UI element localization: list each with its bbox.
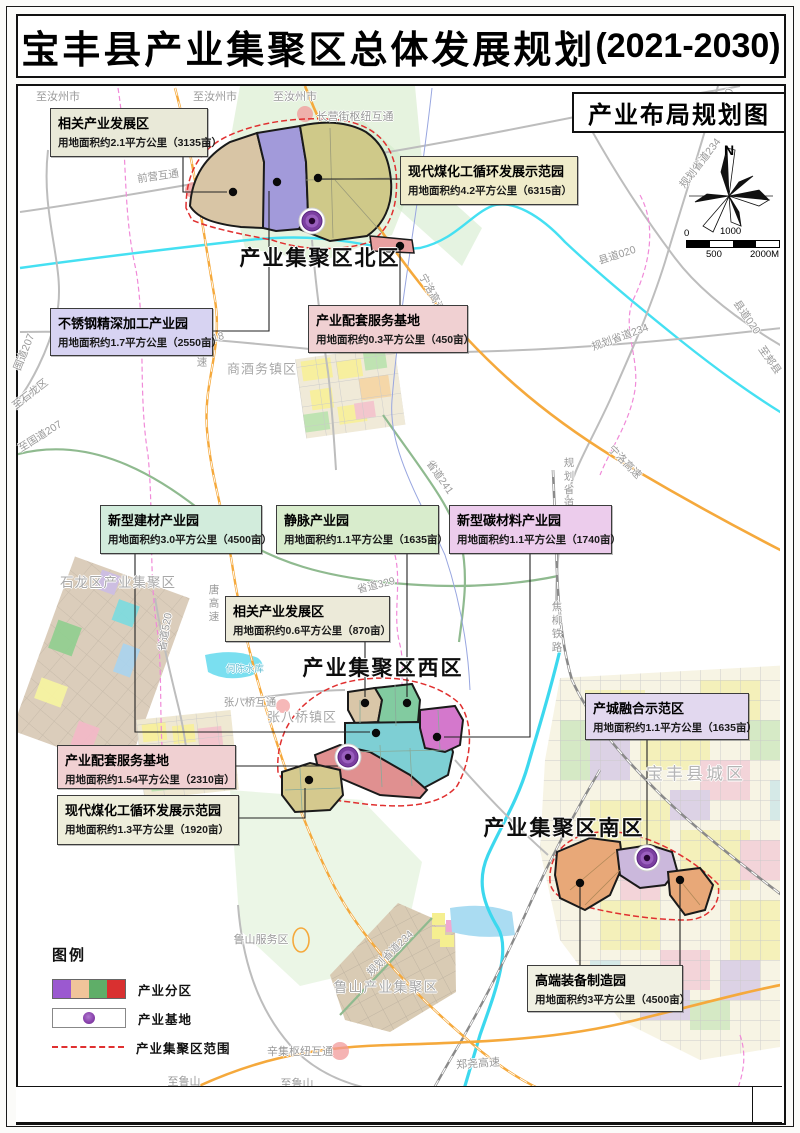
callout-name: 产业配套服务基地 bbox=[316, 310, 461, 329]
scale-2000: 2000M bbox=[750, 249, 779, 260]
park-dot bbox=[361, 699, 369, 707]
callout-name: 现代煤化工循环发展示范园 bbox=[408, 161, 571, 180]
scale-0: 0 bbox=[684, 228, 689, 239]
legend: 图例 产业分区产业基地产业集聚区范围 bbox=[52, 944, 231, 1066]
industry-base-marker bbox=[309, 218, 315, 224]
callout-name: 新型碳材料产业园 bbox=[457, 510, 605, 529]
industry-base-marker bbox=[345, 754, 351, 760]
legend-base-key bbox=[52, 1008, 126, 1028]
callout-area: 用地面积约0.3平方公里（450亩） bbox=[316, 332, 461, 347]
callout-0: 相关产业发展区用地面积约2.1平方公里（3135亩） bbox=[50, 108, 208, 157]
footer-divider bbox=[752, 1087, 753, 1122]
park-dot bbox=[576, 879, 584, 887]
callout-name: 产业配套服务基地 bbox=[65, 750, 229, 769]
industry-base-icon bbox=[83, 1012, 95, 1024]
park-dot bbox=[676, 876, 684, 884]
map-label-35: 郑尧高速 bbox=[455, 1053, 500, 1072]
map-label-0: 至汝州市 bbox=[36, 88, 80, 104]
callout-area: 用地面积约1.1平方公里（1635亩） bbox=[284, 532, 432, 547]
industry-base-marker bbox=[644, 855, 650, 861]
callout-area: 用地面积约3.0平方公里（4500亩） bbox=[108, 532, 255, 547]
map-label-29: 焦柳铁路 bbox=[550, 601, 565, 655]
callout-3: 产业配套服务基地用地面积约0.3平方公里（450亩） bbox=[308, 305, 468, 353]
callout-area: 用地面积约4.2平方公里（6315亩） bbox=[408, 183, 571, 198]
callout-area: 用地面积约1.54平方公里（2310亩） bbox=[65, 772, 229, 787]
park-dot bbox=[305, 776, 313, 784]
map-label-24: 石龙区产业集聚区 bbox=[60, 571, 176, 591]
callout-8: 产城融合示范区用地面积约1.1平方公里（1635亩） bbox=[585, 693, 749, 740]
callout-name: 产城融合示范区 bbox=[593, 698, 742, 717]
legend-item-label: 产业集聚区范围 bbox=[136, 1038, 231, 1057]
callout-10: 现代煤化工循环发展示范园用地面积约1.3平方公里（1920亩） bbox=[57, 795, 239, 845]
callout-area: 用地面积约1.3平方公里（1920亩） bbox=[65, 822, 232, 837]
callout-name: 现代煤化工循环发展示范园 bbox=[65, 800, 232, 819]
callout-6: 新型碳材料产业园用地面积约1.1平方公里（1740亩） bbox=[449, 505, 612, 554]
map-label-1: 至汝州市 bbox=[193, 88, 237, 104]
map-label-15: 唐高速 bbox=[207, 584, 222, 625]
map-label-30: 宝丰县城区 bbox=[646, 760, 746, 785]
planning-map-page: 宝丰县产业集聚区总体发展规划(2021-2030) 产业布局规划图 N 0 10… bbox=[0, 0, 800, 1133]
callout-area: 用地面积约2.1平方公里（3135亩） bbox=[58, 135, 201, 150]
callout-name: 静脉产业园 bbox=[284, 510, 432, 529]
map-label-26: 何陈水库 bbox=[226, 661, 264, 675]
callout-area: 用地面积约1.1平方公里（1740亩） bbox=[457, 532, 605, 547]
callout-11: 高端装备制造园用地面积约3平方公里（4500亩） bbox=[527, 965, 683, 1012]
legend-zone-swatches bbox=[52, 979, 126, 999]
park-dot bbox=[273, 178, 281, 186]
callout-7: 相关产业发展区用地面积约0.6平方公里（870亩） bbox=[225, 596, 390, 642]
callout-name: 相关产业发展区 bbox=[58, 113, 201, 132]
cluster-boundary-icon bbox=[52, 1046, 124, 1048]
callout-1: 现代煤化工循环发展示范园用地面积约4.2平方公里（6315亩） bbox=[400, 156, 578, 205]
callout-area: 用地面积约1.1平方公里（1635亩） bbox=[593, 720, 742, 735]
legend-item-0: 产业分区 bbox=[52, 979, 231, 999]
footer-strip bbox=[16, 1086, 782, 1124]
map-title: 产业布局规划图 bbox=[572, 92, 786, 133]
legend-item-label: 产业分区 bbox=[138, 980, 192, 999]
legend-item-label: 产业基地 bbox=[138, 1009, 192, 1028]
callout-name: 高端装备制造园 bbox=[535, 970, 676, 989]
callout-5: 静脉产业园用地面积约1.1平方公里（1635亩） bbox=[276, 505, 439, 554]
callout-area: 用地面积约0.6平方公里（870亩） bbox=[233, 623, 383, 638]
callout-name: 相关产业发展区 bbox=[233, 601, 383, 620]
park-dot bbox=[372, 729, 380, 737]
callout-name: 不锈钢精深加工产业园 bbox=[58, 313, 206, 332]
park-dot bbox=[229, 188, 237, 196]
legend-boundary-key bbox=[52, 1038, 124, 1056]
callout-name: 新型建材产业园 bbox=[108, 510, 255, 529]
map-label-13: 商酒务镇区 bbox=[227, 359, 297, 378]
map-label-3: 长营街枢纽互通 bbox=[317, 108, 394, 124]
map-label-28: 张八桥镇区 bbox=[267, 707, 337, 726]
map-label-31: 鲁山服务区 bbox=[234, 931, 289, 947]
scale-500: 500 bbox=[706, 249, 722, 260]
legend-title: 图例 bbox=[52, 944, 231, 965]
park-dot bbox=[403, 699, 411, 707]
district-label-2: 产业集聚区南区 bbox=[484, 812, 645, 842]
legend-item-2: 产业集聚区范围 bbox=[52, 1037, 231, 1057]
callout-area: 用地面积约3平方公里（4500亩） bbox=[535, 992, 676, 1007]
scale-bar: 0 1000 500 2000M bbox=[682, 228, 786, 258]
district-label-1: 产业集聚区西区 bbox=[303, 652, 464, 682]
legend-item-1: 产业基地 bbox=[52, 1008, 231, 1028]
map-label-33: 鲁山产业集聚区 bbox=[334, 977, 439, 997]
callout-9: 产业配套服务基地用地面积约1.54平方公里（2310亩） bbox=[57, 745, 236, 789]
park-dot bbox=[433, 733, 441, 741]
map-label-2: 至汝州市 bbox=[273, 88, 317, 104]
callout-2: 不锈钢精深加工产业园用地面积约1.7平方公里（2550亩） bbox=[50, 308, 213, 356]
scale-1000: 1000 bbox=[720, 226, 741, 237]
scale-segments bbox=[686, 240, 780, 248]
callout-4: 新型建材产业园用地面积约3.0平方公里（4500亩） bbox=[100, 505, 262, 554]
district-label-0: 产业集聚区北区 bbox=[240, 242, 401, 272]
callout-area: 用地面积约1.7平方公里（2550亩） bbox=[58, 335, 206, 350]
map-label-34: 辛集枢纽互通 bbox=[267, 1043, 333, 1059]
park-dot bbox=[314, 174, 322, 182]
